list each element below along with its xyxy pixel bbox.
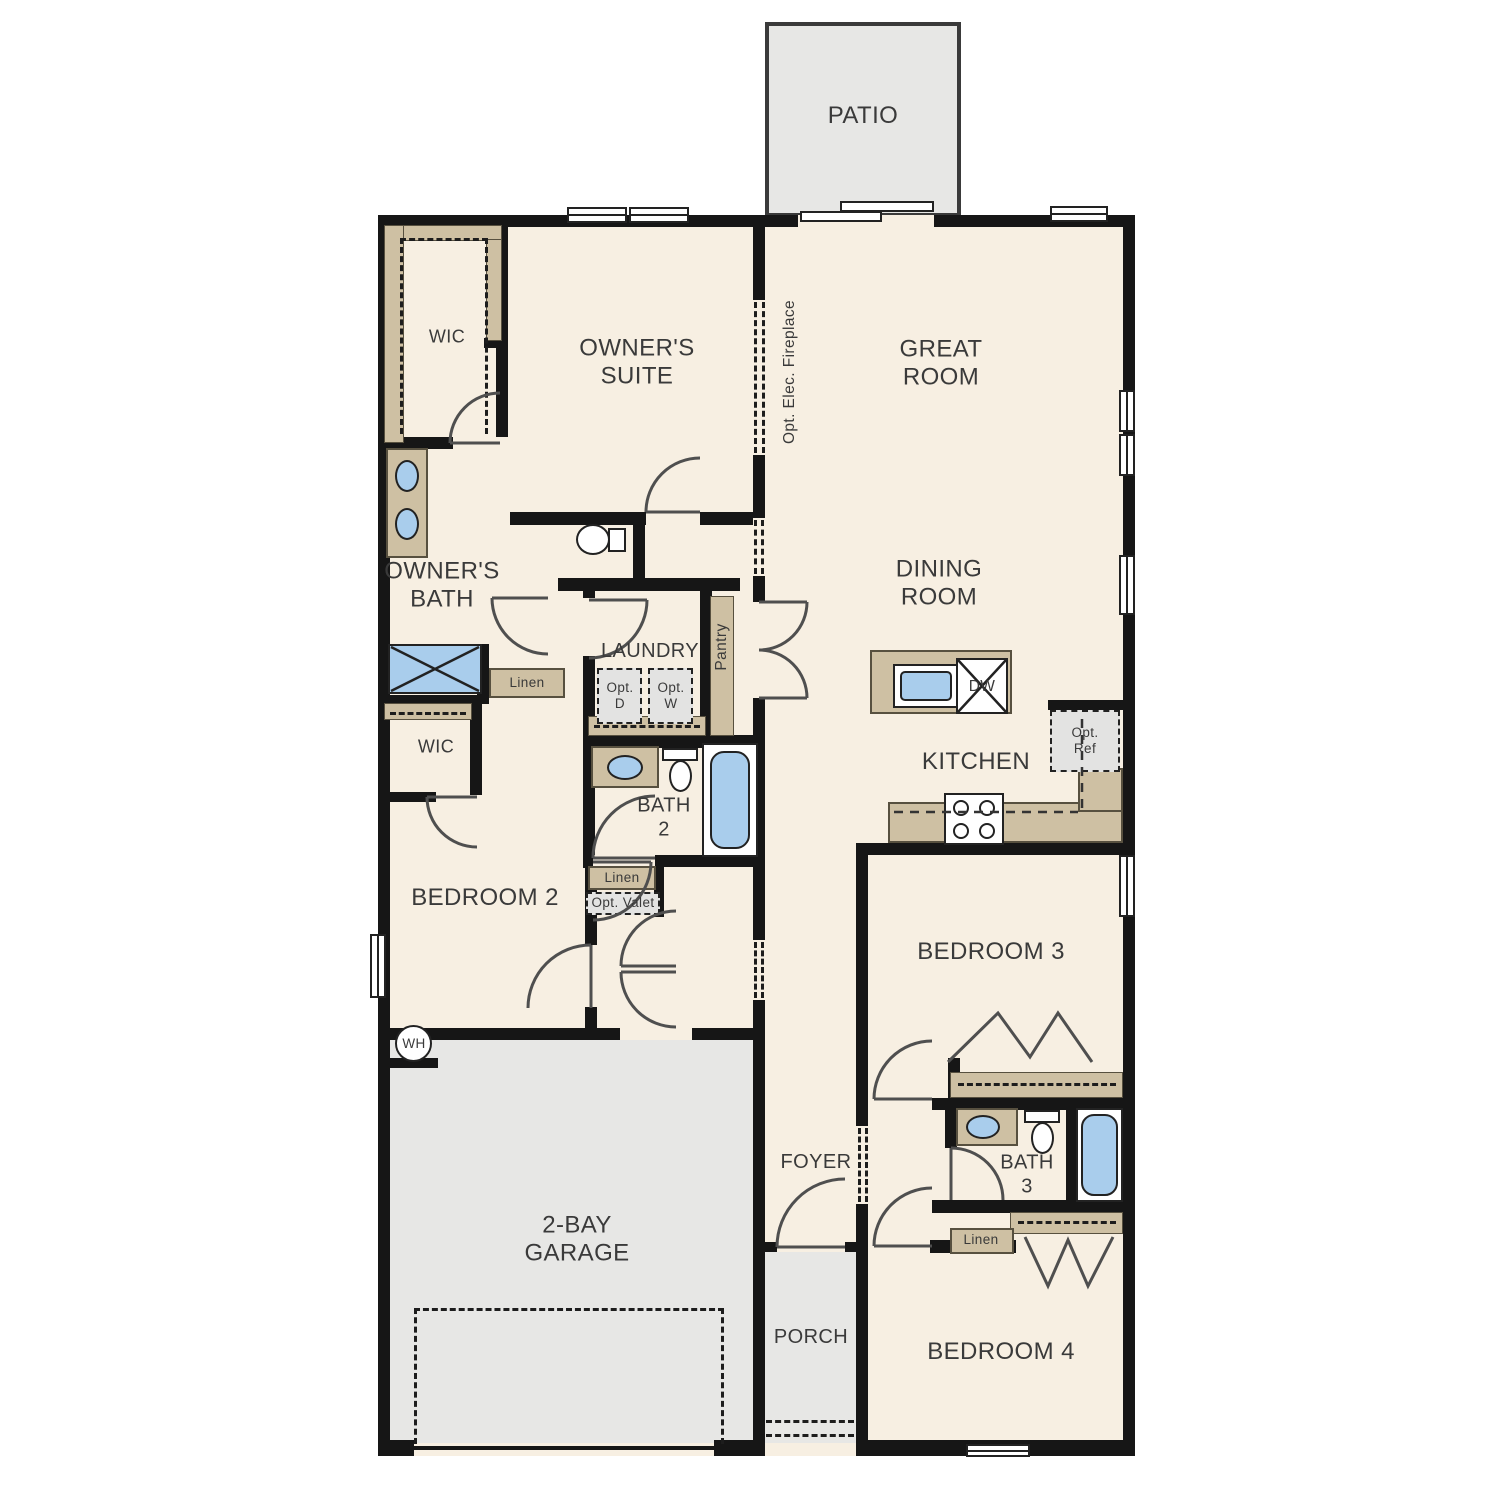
window xyxy=(629,207,689,223)
toilet-bowl xyxy=(669,760,692,792)
wall xyxy=(378,1440,414,1456)
opening-dash xyxy=(754,942,757,998)
label-linen-owners: Linen xyxy=(509,675,544,691)
label-dishwasher: DW xyxy=(969,678,996,696)
opening xyxy=(753,602,765,698)
patio-slider-door xyxy=(800,211,882,222)
label-bath-2: BATH 2 xyxy=(637,794,690,841)
wall xyxy=(410,1446,722,1450)
toilet-bowl xyxy=(576,524,610,555)
garage-door-dash xyxy=(414,1308,724,1444)
floor-plan: PATIO OWNER'S SUITE WIC GREAT ROOM Opt. … xyxy=(0,0,1500,1500)
tub xyxy=(710,751,750,849)
window xyxy=(1050,206,1108,222)
toilet-tank xyxy=(608,528,626,552)
label-linen-hall: Linen xyxy=(604,870,639,886)
opening xyxy=(868,1098,932,1110)
label-bath-3: BATH 3 xyxy=(1000,1151,1053,1198)
opening xyxy=(945,1148,957,1200)
opening-dash xyxy=(858,1128,861,1202)
label-opt-refrigerator: Opt. Ref xyxy=(1071,725,1098,757)
closet-shelf-dash xyxy=(958,1083,1116,1086)
window xyxy=(1119,555,1135,615)
patio-slider-door xyxy=(840,201,934,212)
wic-shelf xyxy=(486,239,502,341)
label-opt-washer: Opt. W xyxy=(657,680,684,712)
sink xyxy=(607,755,643,780)
wall xyxy=(700,512,753,525)
wall xyxy=(510,512,646,525)
window xyxy=(370,934,386,998)
window xyxy=(567,207,627,223)
label-great-room: GREAT ROOM xyxy=(900,336,983,393)
sink xyxy=(395,460,419,492)
sink xyxy=(966,1115,1000,1139)
label-porch: PORCH xyxy=(774,1326,848,1350)
closet-shelf-dash xyxy=(1018,1221,1116,1224)
label-garage: 2-BAY GARAGE xyxy=(524,1212,629,1269)
wall xyxy=(378,1028,763,1040)
label-opt-dryer: Opt. D xyxy=(606,680,633,712)
wall xyxy=(633,512,645,582)
label-linen-bath3: Linen xyxy=(963,1232,998,1248)
opening-dash xyxy=(865,1128,868,1202)
laundry-counter-dash xyxy=(594,725,700,728)
island-sink xyxy=(900,671,952,701)
wall xyxy=(1048,700,1125,710)
label-pantry: Pantry xyxy=(713,623,731,670)
opening xyxy=(646,512,700,525)
porch-edge-dash xyxy=(766,1434,854,1437)
window xyxy=(1119,434,1135,476)
porch-edge-dash xyxy=(766,1420,854,1423)
shower xyxy=(388,644,482,694)
label-kitchen: KITCHEN xyxy=(922,748,1030,776)
kitchen-counter xyxy=(1078,768,1123,812)
threshold xyxy=(966,1444,1030,1457)
wall xyxy=(1066,1108,1076,1204)
label-patio: PATIO xyxy=(828,102,898,130)
label-opt-valet: Opt. Valet xyxy=(591,895,654,911)
burner xyxy=(953,823,969,839)
opening xyxy=(620,1028,692,1040)
opening-dash xyxy=(761,520,764,574)
label-laundry: LAUNDRY xyxy=(601,640,699,664)
burner xyxy=(979,823,995,839)
burner xyxy=(979,800,995,816)
wic2-rod-dash xyxy=(390,712,466,715)
wall xyxy=(378,792,436,802)
burner xyxy=(953,800,969,816)
opening xyxy=(868,1240,930,1253)
label-bedroom-3: BEDROOM 3 xyxy=(917,938,1065,966)
label-water-heater: WH xyxy=(402,1036,425,1052)
label-owners-suite: OWNER'S SUITE xyxy=(579,335,694,392)
opening-dash xyxy=(761,942,764,998)
opening xyxy=(585,945,597,1007)
opening xyxy=(583,598,595,656)
window xyxy=(1119,855,1135,917)
label-owners-bath: OWNER'S BATH xyxy=(384,558,499,615)
label-foyer: FOYER xyxy=(781,1151,852,1175)
label-opt-fireplace: Opt. Elec. Fireplace xyxy=(781,300,799,444)
fireplace-dash xyxy=(762,302,765,453)
tub xyxy=(1081,1114,1118,1196)
toilet-bowl xyxy=(1031,1122,1054,1154)
label-wic-2: WIC xyxy=(418,736,454,757)
fireplace-dash xyxy=(754,302,757,453)
label-bedroom-4: BEDROOM 4 xyxy=(927,1338,1075,1366)
opening-dash xyxy=(754,520,757,574)
window xyxy=(1119,390,1135,432)
sink xyxy=(395,508,419,540)
label-bedroom-2: BEDROOM 2 xyxy=(411,884,559,912)
label-wic-1: WIC xyxy=(429,326,465,347)
stove xyxy=(944,793,1004,845)
opening xyxy=(777,1242,845,1252)
label-dining-room: DINING ROOM xyxy=(896,556,982,613)
